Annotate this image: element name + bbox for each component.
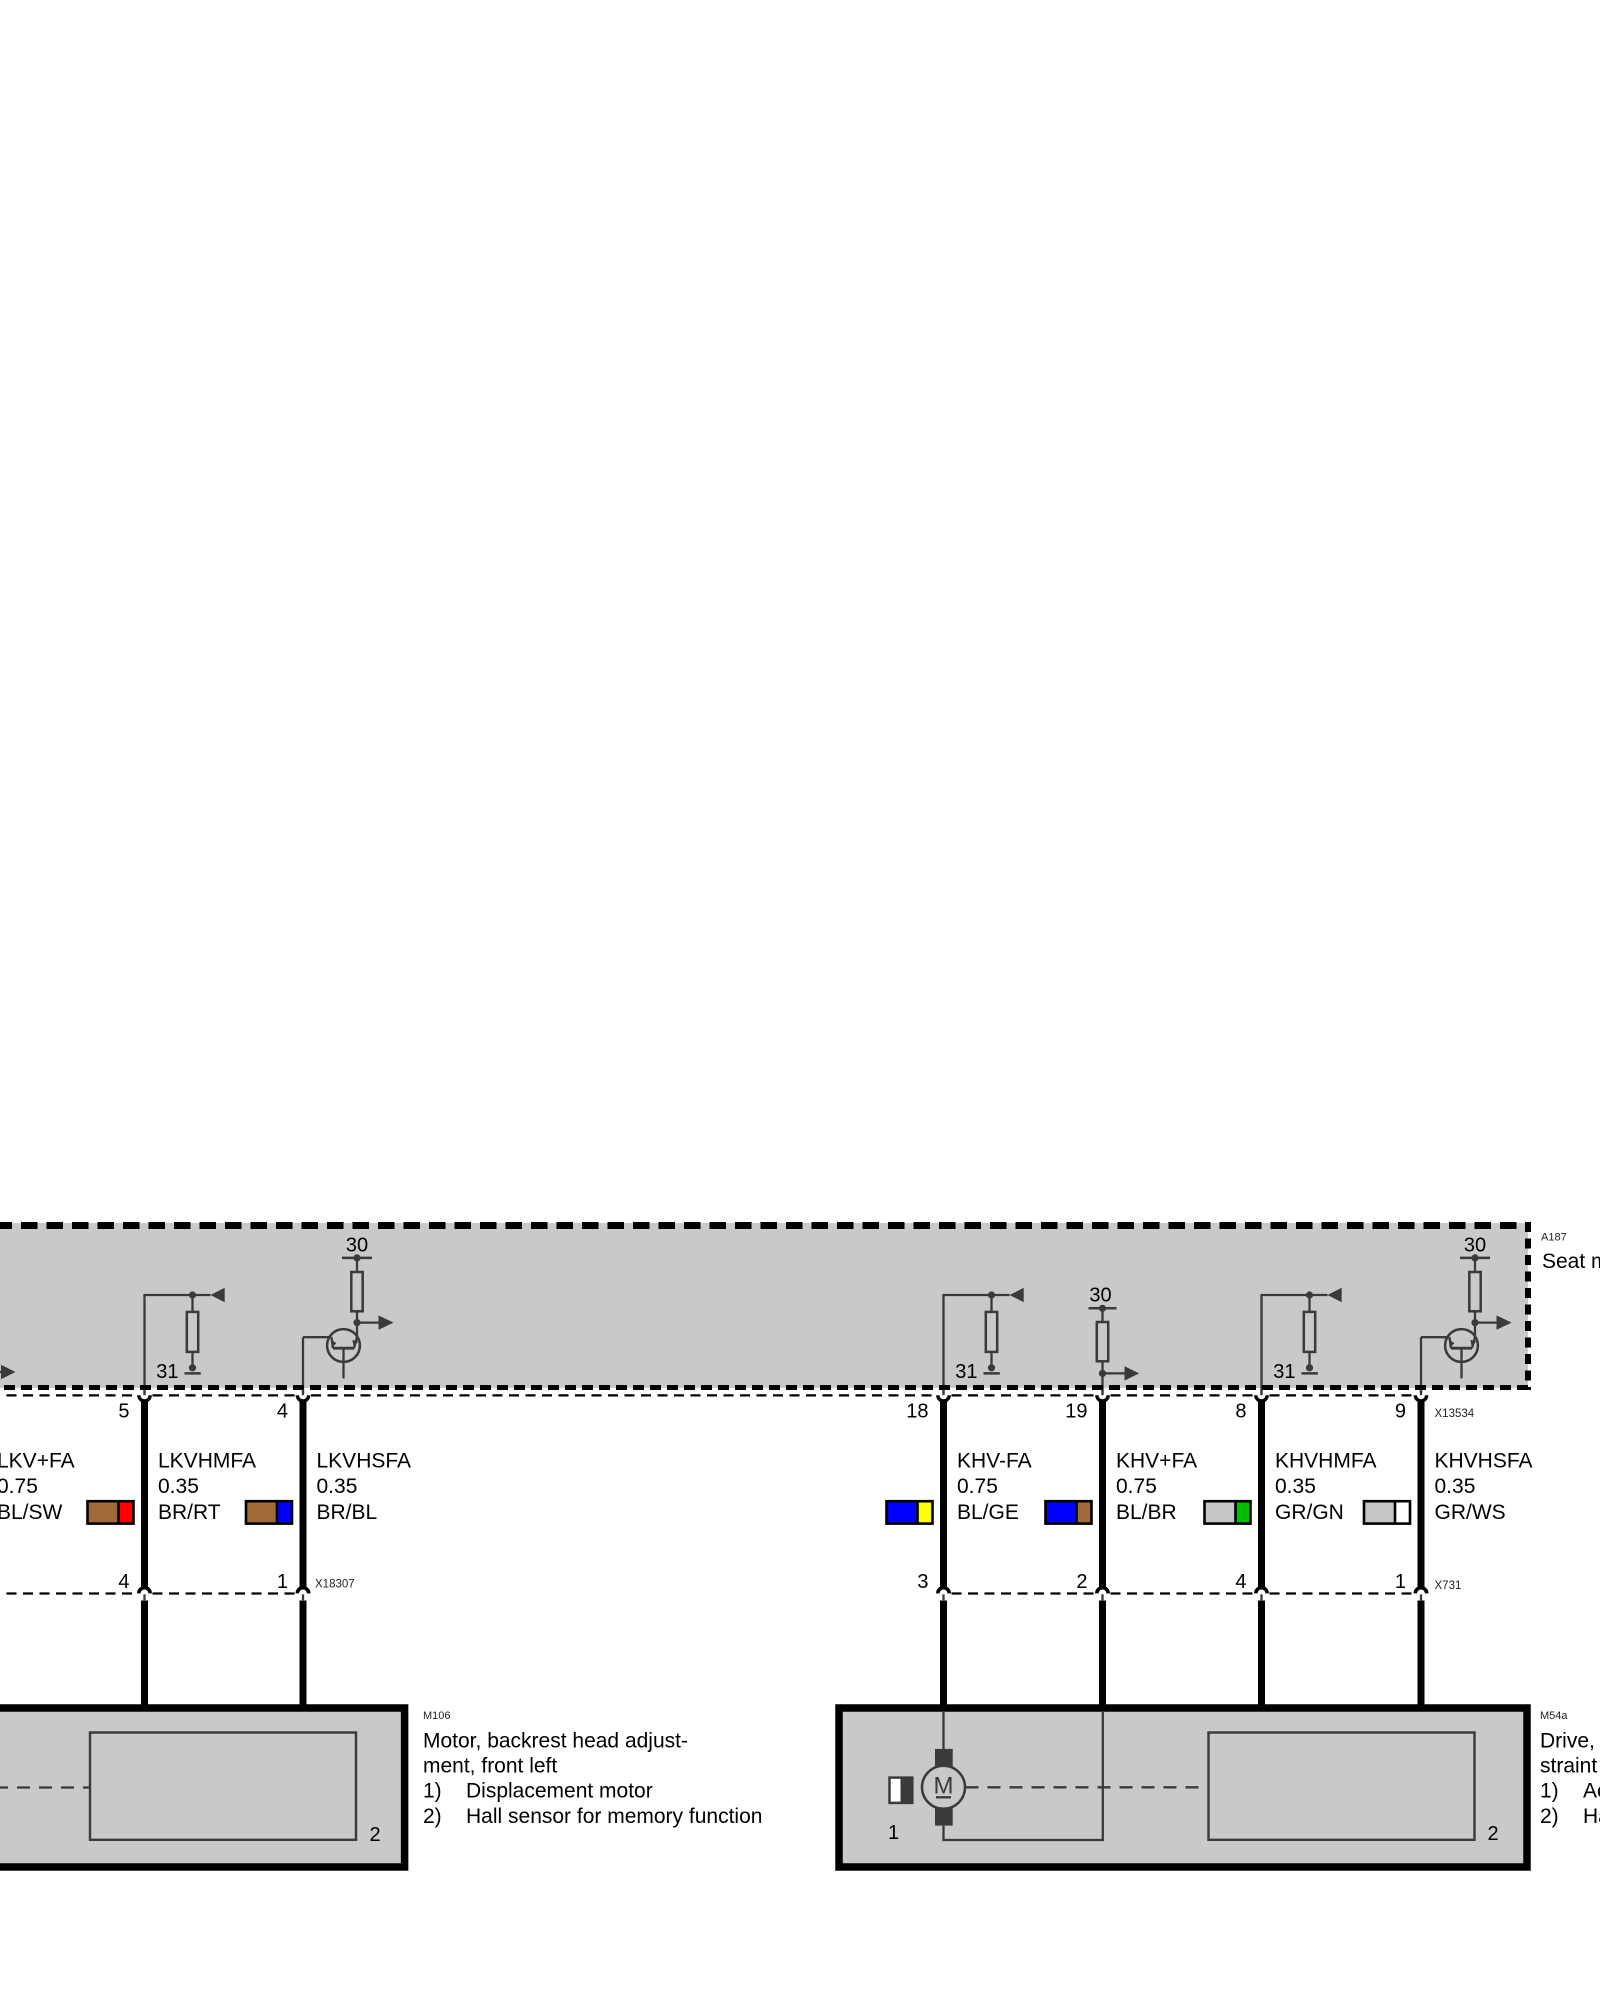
svg-text:2: 2 [1488,1823,1499,1845]
svg-text:Drive, head re-: Drive, head re- [1540,1730,1600,1753]
svg-text:BR/BL: BR/BL [317,1501,378,1524]
svg-text:KHV+FA: KHV+FA [1116,1449,1197,1472]
svg-text:2: 2 [370,1824,381,1846]
svg-text:LKVHSFA: LKVHSFA [317,1449,412,1472]
svg-text:M: M [934,1773,954,1800]
svg-text:0.75: 0.75 [957,1475,998,1498]
svg-text:Hall sensor: Hall sensor [1583,1805,1600,1828]
svg-text:2): 2) [423,1805,442,1828]
svg-text:A187: A187 [1541,1232,1567,1244]
svg-text:KHV-FA: KHV-FA [957,1449,1032,1472]
svg-text:GR/WS: GR/WS [1435,1501,1506,1524]
svg-text:4: 4 [118,1571,129,1593]
svg-text:1): 1) [423,1780,442,1803]
svg-text:Displacement motor: Displacement motor [466,1780,653,1803]
svg-text:5: 5 [118,1400,129,1422]
svg-text:KHVHMFA: KHVHMFA [1275,1449,1377,1472]
svg-text:M54a: M54a [1540,1710,1568,1722]
svg-text:Motor, backrest head adjust-: Motor, backrest head adjust- [423,1730,688,1753]
svg-text:30: 30 [1464,1234,1486,1256]
svg-text:X731: X731 [1435,1580,1462,1592]
svg-text:BR/RT: BR/RT [158,1501,221,1524]
svg-text:0.35: 0.35 [158,1475,199,1498]
svg-text:0.35: 0.35 [1275,1475,1316,1498]
svg-text:1: 1 [888,1822,899,1844]
svg-text:BL/BR: BL/BR [1116,1501,1177,1524]
svg-text:0.35: 0.35 [317,1475,358,1498]
svg-text:4: 4 [1235,1571,1246,1593]
svg-text:1: 1 [277,1571,288,1593]
svg-text:0.75: 0.75 [0,1475,38,1498]
svg-text:30: 30 [346,1234,368,1256]
svg-text:31: 31 [955,1361,977,1383]
svg-text:KHVHSFA: KHVHSFA [1435,1449,1533,1472]
svg-text:Hall sensor for memory functio: Hall sensor for memory function [466,1805,762,1828]
svg-text:Seat module, driver: Seat module, driver [1542,1250,1600,1273]
svg-text:1: 1 [1395,1571,1406,1593]
svg-text:2): 2) [1540,1805,1559,1828]
svg-text:ment, front left: ment, front left [423,1755,557,1778]
svg-text:2: 2 [1076,1571,1087,1593]
svg-text:19: 19 [1065,1400,1087,1422]
svg-text:Actuator motor: Actuator motor [1583,1780,1600,1803]
svg-text:31: 31 [1273,1361,1295,1383]
svg-text:straint adjustment: straint adjustment [1540,1755,1600,1778]
svg-text:0.35: 0.35 [1435,1475,1476,1498]
svg-text:GR/GN: GR/GN [1275,1501,1344,1524]
svg-text:3: 3 [917,1571,928,1593]
svg-text:18: 18 [906,1400,928,1422]
svg-text:8: 8 [1235,1400,1246,1422]
svg-text:X18307: X18307 [315,1578,355,1590]
svg-text:9: 9 [1395,1400,1406,1422]
svg-text:0.75: 0.75 [1116,1475,1157,1498]
svg-text:BL/SW: BL/SW [0,1501,63,1524]
svg-text:M106: M106 [423,1710,451,1722]
svg-text:BL/GE: BL/GE [957,1501,1019,1524]
svg-text:4: 4 [277,1400,288,1422]
svg-text:30: 30 [1089,1284,1111,1306]
svg-text:X13534: X13534 [1435,1408,1475,1420]
svg-text:LKVHMFA: LKVHMFA [158,1449,256,1472]
svg-text:31: 31 [156,1361,178,1383]
svg-text:LKV+FA: LKV+FA [0,1449,75,1472]
svg-text:1): 1) [1540,1780,1559,1803]
